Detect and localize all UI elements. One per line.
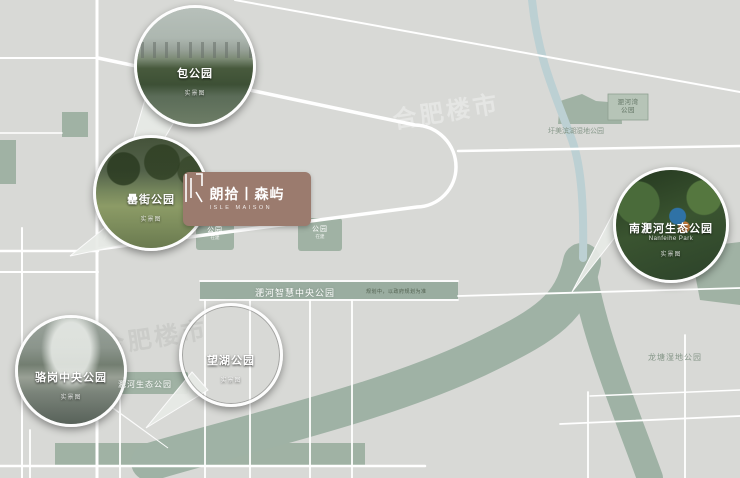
project-name-cn: 朗拾丨森屿 xyxy=(210,187,285,202)
location-map: 合肥楼市 合肥楼市 包公园 实景图 罍街公园 实景图 骆岗中央公园 实景图 望湖… xyxy=(0,0,740,478)
park-name: 望湖公园 xyxy=(207,352,255,368)
weimei-wetland-label: 圩美滨湖湿地公园 xyxy=(548,126,604,136)
park-name: 骆岗中央公园 xyxy=(35,369,107,385)
callout-nanfeihe: 南淝河生态公园 Nanfeihe Park 实景图 xyxy=(613,167,729,283)
callout-luogang: 骆岗中央公园 实景图 xyxy=(15,315,127,427)
eco-park-label: 淝河生态公园 xyxy=(118,379,172,390)
park-name: 南淝河生态公园 xyxy=(629,220,713,236)
smart-park-note: 规划中，以政府规划为准 xyxy=(366,288,427,295)
feihewan-line2: 公园 xyxy=(621,107,635,115)
park-patch-2-label: 公园 在建 xyxy=(298,226,342,240)
greenspace-strip xyxy=(0,140,16,184)
callout-wanghu: 望湖公园 实景图 xyxy=(179,303,283,407)
park-patch-note: 在建 xyxy=(298,234,342,239)
greenspace-square xyxy=(62,112,88,137)
park-name: 包公园 xyxy=(177,65,213,81)
park-patch-1-label: 公园 在建 xyxy=(196,227,234,241)
photo-caption: 实景图 xyxy=(35,392,107,401)
longtang-park-label: 龙塘湿地公园 xyxy=(648,352,702,363)
park-patch-note: 在建 xyxy=(196,235,234,240)
park-name: 罍街公园 xyxy=(127,191,175,207)
photo-caption: 实景图 xyxy=(629,249,713,258)
callout-baogongyuan: 包公园 实景图 xyxy=(134,5,256,127)
photo-caption: 实景图 xyxy=(207,375,255,384)
project-name-en: ISLE MAISON xyxy=(210,205,285,211)
smart-park-label: 淝河智慧中央公园 xyxy=(255,286,335,299)
project-logo-card: 朗拾丨森屿 ISLE MAISON xyxy=(183,172,311,226)
feihewan-park-label: 淝河湾 公园 xyxy=(608,94,648,120)
photo-caption: 实景图 xyxy=(127,214,175,223)
park-name-en: Nanfeihe Park xyxy=(629,236,713,242)
brand-logo-icon xyxy=(183,172,205,204)
feihewan-line1: 淝河湾 xyxy=(618,99,639,107)
photo-caption: 实景图 xyxy=(177,88,213,97)
